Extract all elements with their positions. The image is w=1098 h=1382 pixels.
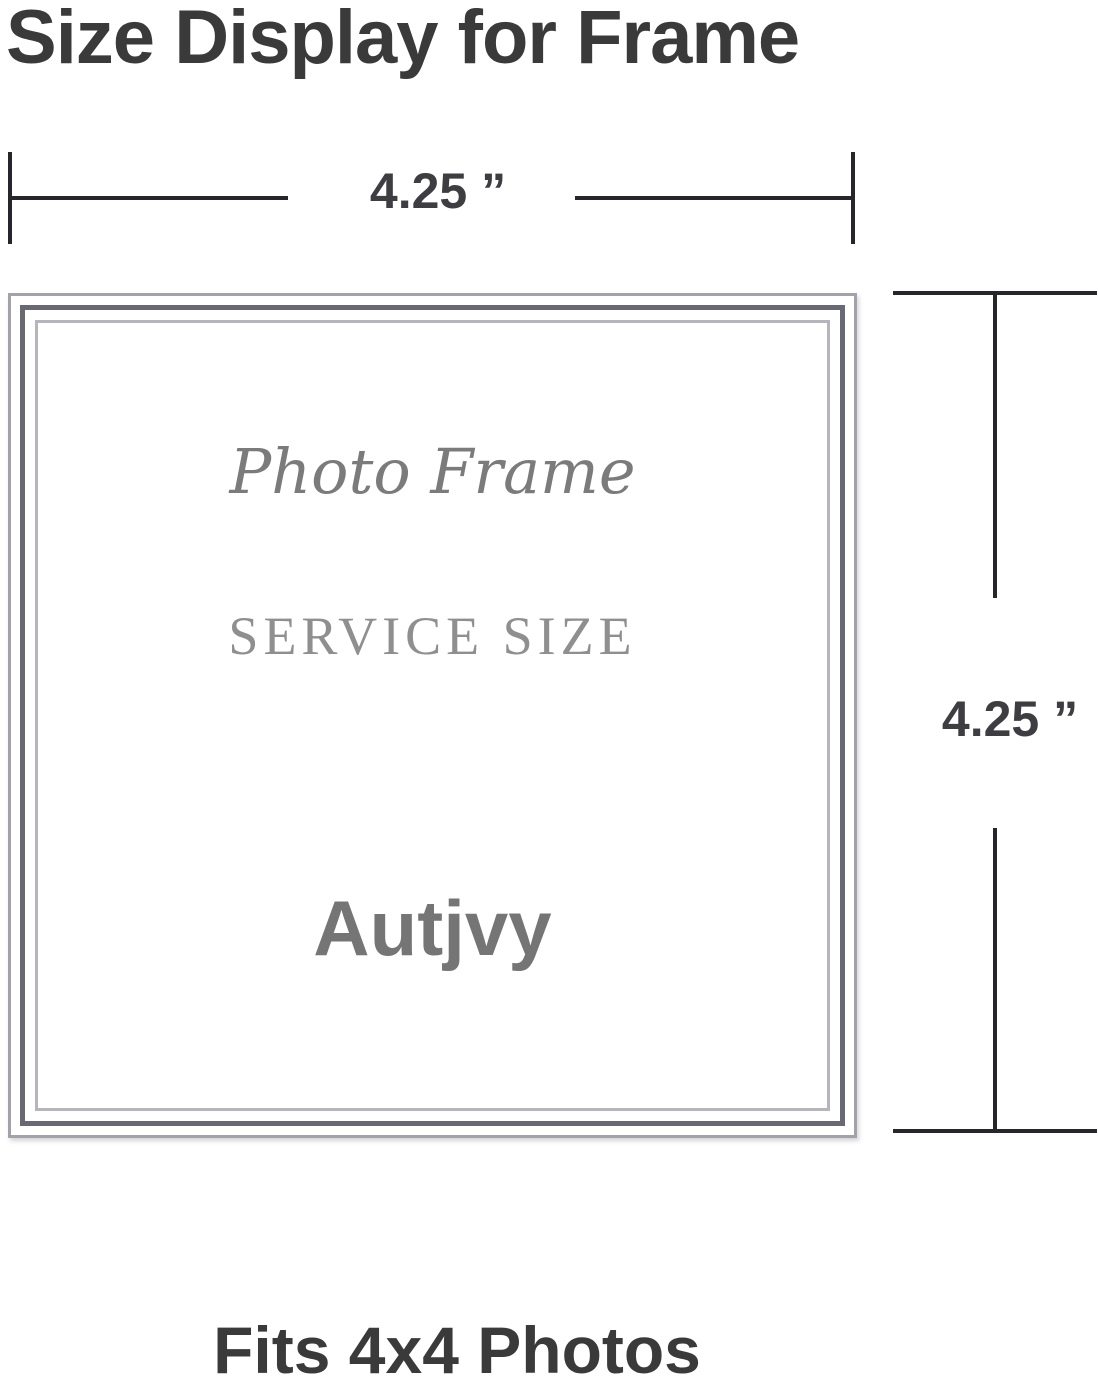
frame-script-text: Photo Frame: [38, 435, 827, 508]
fits-caption: Fits 4x4 Photos: [213, 1312, 701, 1382]
height-dimension-upper-line: [993, 293, 997, 598]
height-dimension-bottom-tick: [893, 1129, 1097, 1133]
size-display-diagram: Size Display for Frame 4.25 ” Photo Fram…: [0, 0, 1098, 1382]
frame-service-size-text: SERVICE SIZE: [38, 605, 827, 667]
page-title: Size Display for Frame: [6, 0, 799, 85]
width-dimension-left-line: [8, 196, 288, 200]
height-dimension-label: 4.25 ”: [942, 690, 1078, 748]
width-dimension-right-line: [575, 196, 855, 200]
photo-frame-outer-border: Photo Frame SERVICE SIZE Autjvy: [8, 293, 857, 1138]
frame-brand-text: Autjvy: [38, 883, 827, 974]
height-dimension-lower-line: [993, 828, 997, 1133]
photo-frame-middle-border: Photo Frame SERVICE SIZE Autjvy: [20, 305, 845, 1126]
width-dimension-right-tick: [851, 152, 855, 244]
photo-frame-inner-border: Photo Frame SERVICE SIZE Autjvy: [35, 320, 830, 1111]
width-dimension-label: 4.25 ”: [370, 162, 506, 220]
